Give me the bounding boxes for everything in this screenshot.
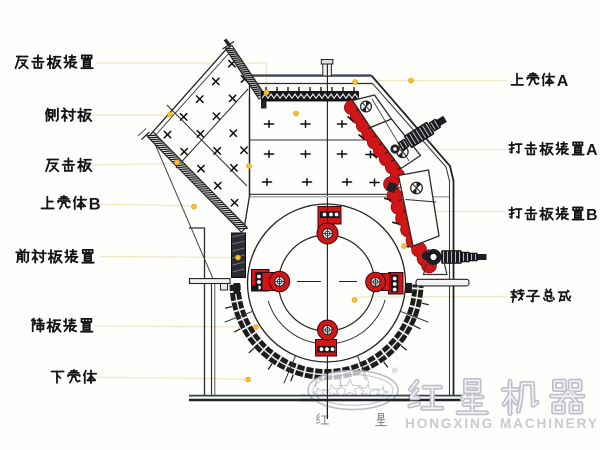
svg-text:A: A: [557, 73, 568, 90]
svg-text:A: A: [586, 142, 597, 159]
svg-text:B: B: [586, 207, 597, 224]
svg-text:B: B: [89, 196, 101, 214]
svg-text:®: ®: [392, 366, 398, 375]
svg-text:HONGXING MACHINERY: HONGXING MACHINERY: [405, 416, 599, 431]
